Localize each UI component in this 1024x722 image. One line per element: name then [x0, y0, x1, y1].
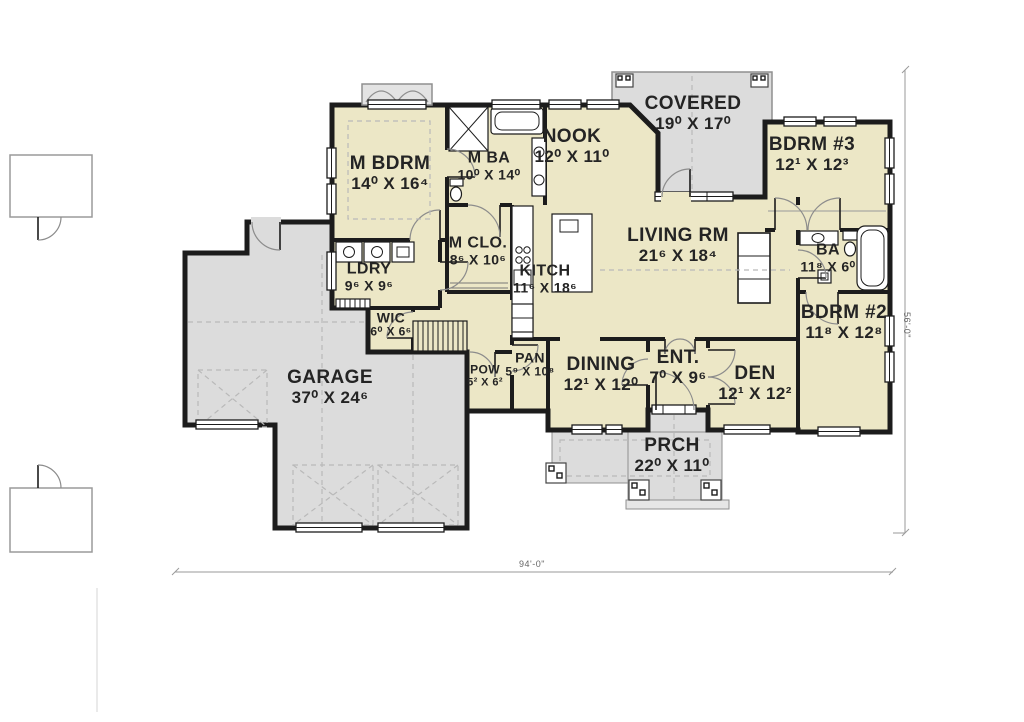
room-label-m-ba: M BA 10⁰ X 14⁰	[457, 150, 520, 183]
room-name: KITCH	[520, 263, 571, 281]
porch-post	[701, 480, 721, 500]
room-name: BDRM #2	[801, 303, 887, 324]
patio-post	[751, 74, 768, 87]
yard-structure	[10, 465, 92, 552]
stairs	[413, 321, 467, 351]
window	[824, 117, 856, 126]
room-dims: 12¹ X 12²	[718, 385, 792, 404]
room-label-ent: ENT. 7⁰ X 9⁶	[649, 348, 706, 388]
room-dims: 11⁸ X 12⁸	[805, 324, 882, 343]
room-dims: 12¹ X 12³	[775, 156, 849, 175]
room-label-kitch: KITCH 11⁶ X 18⁶	[513, 263, 577, 296]
window	[606, 425, 622, 434]
room-name: BA	[816, 242, 840, 260]
room-name: LDRY	[347, 261, 392, 279]
room-name: NOOK	[543, 127, 602, 148]
room-dims: 21⁶ X 18⁴	[639, 247, 717, 266]
garage-door	[378, 523, 444, 532]
window	[784, 117, 816, 126]
room-name: M BA	[468, 150, 510, 168]
patio-post	[616, 74, 633, 87]
room-dims: 10⁰ X 14⁰	[457, 167, 520, 182]
room-dims: 8⁶ X 10⁶	[450, 252, 507, 267]
window	[724, 425, 770, 434]
room-name: M BDRM	[350, 154, 431, 175]
room-name: PRCH	[644, 436, 699, 457]
vent-grate	[336, 299, 370, 308]
room-label-ba: BA 11⁸ X 6⁰	[800, 242, 855, 275]
room-name: POW	[470, 363, 500, 376]
room-dims: 12¹ X 12⁰	[564, 376, 639, 395]
room-dims: 12⁰ X 11⁰	[535, 148, 610, 167]
room-dims: 9⁶ X 9⁶	[345, 278, 393, 293]
shower-icon	[449, 107, 488, 151]
room-label-ldry: LDRY 9⁶ X 9⁶	[345, 261, 393, 294]
room-dims: 5⁹ X 10⁸	[505, 366, 554, 379]
room-dims: 14⁰ X 16⁴	[351, 175, 428, 194]
room-dims: 11⁸ X 6⁰	[800, 259, 855, 274]
room-name: GARAGE	[287, 368, 373, 389]
window	[327, 252, 336, 290]
room-name: DEN	[734, 364, 775, 385]
room-name: PAN	[515, 351, 545, 366]
room-dims: 37⁰ X 24⁶	[292, 389, 369, 408]
room-dims: 5² X 6²	[467, 377, 503, 389]
room-dims: 22⁰ X 11⁰	[635, 457, 710, 476]
room-label-garage: GARAGE 37⁰ X 24⁶	[287, 368, 373, 408]
room-dims: 11⁶ X 18⁶	[513, 280, 577, 295]
room-label-den: DEN 12¹ X 12²	[718, 364, 792, 404]
window	[818, 427, 860, 436]
room-label-covered: COVERED 19⁰ X 17⁰	[645, 94, 742, 134]
garage-door	[196, 420, 258, 429]
room-dims: 19⁰ X 17⁰	[655, 115, 731, 134]
window	[327, 148, 336, 178]
overall-height-dimension: 56'-0"	[902, 312, 912, 338]
window	[885, 352, 894, 382]
porch-post	[546, 463, 566, 483]
garage-door	[296, 523, 362, 532]
laundry-appliances	[336, 242, 414, 262]
window	[885, 138, 894, 168]
room-dims: 6⁰ X 6⁶	[370, 326, 411, 339]
front-door-sidelites	[652, 405, 696, 414]
room-name: DINING	[567, 355, 636, 376]
room-label-wic: WIC 6⁰ X 6⁶	[370, 311, 411, 340]
overall-width-dimension: 94'-0"	[519, 559, 545, 569]
window	[549, 100, 581, 109]
window	[492, 100, 540, 109]
room-label-pan: PAN 5⁹ X 10⁸	[505, 351, 554, 380]
door-gap	[661, 192, 691, 202]
window	[368, 100, 426, 109]
fireplace	[738, 233, 770, 303]
room-name: ENT.	[657, 348, 700, 369]
room-name: COVERED	[645, 94, 742, 115]
window	[572, 425, 602, 434]
door-gap	[251, 217, 281, 227]
room-name: M CLO.	[449, 235, 507, 253]
window	[587, 100, 619, 109]
room-label-m-clo: M CLO. 8⁶ X 10⁶	[449, 235, 507, 268]
room-name: WIC	[377, 311, 405, 326]
floor-plan: M BDRM 14⁰ X 16⁴ M BA 10⁰ X 14⁰ NOOK 12⁰…	[0, 0, 1024, 722]
room-label-living-rm: LIVING RM 21⁶ X 18⁴	[627, 226, 729, 266]
room-label-prch: PRCH 22⁰ X 11⁰	[635, 436, 710, 476]
room-label-dining: DINING 12¹ X 12⁰	[564, 355, 639, 395]
porch-post	[629, 480, 649, 500]
yard-structure	[10, 155, 92, 240]
room-label-m-bdrm: M BDRM 14⁰ X 16⁴	[350, 154, 431, 194]
window	[885, 174, 894, 204]
window	[327, 184, 336, 214]
room-label-nook: NOOK 12⁰ X 11⁰	[535, 127, 610, 167]
room-name: LIVING RM	[627, 226, 729, 247]
room-label-bdrm2: BDRM #2 11⁸ X 12⁸	[801, 303, 887, 343]
room-dims: 7⁰ X 9⁶	[649, 369, 706, 388]
room-label-pow: POW 5² X 6²	[467, 363, 503, 388]
room-name: BDRM #3	[769, 135, 855, 156]
room-label-bdrm3: BDRM #3 12¹ X 12³	[769, 135, 855, 175]
